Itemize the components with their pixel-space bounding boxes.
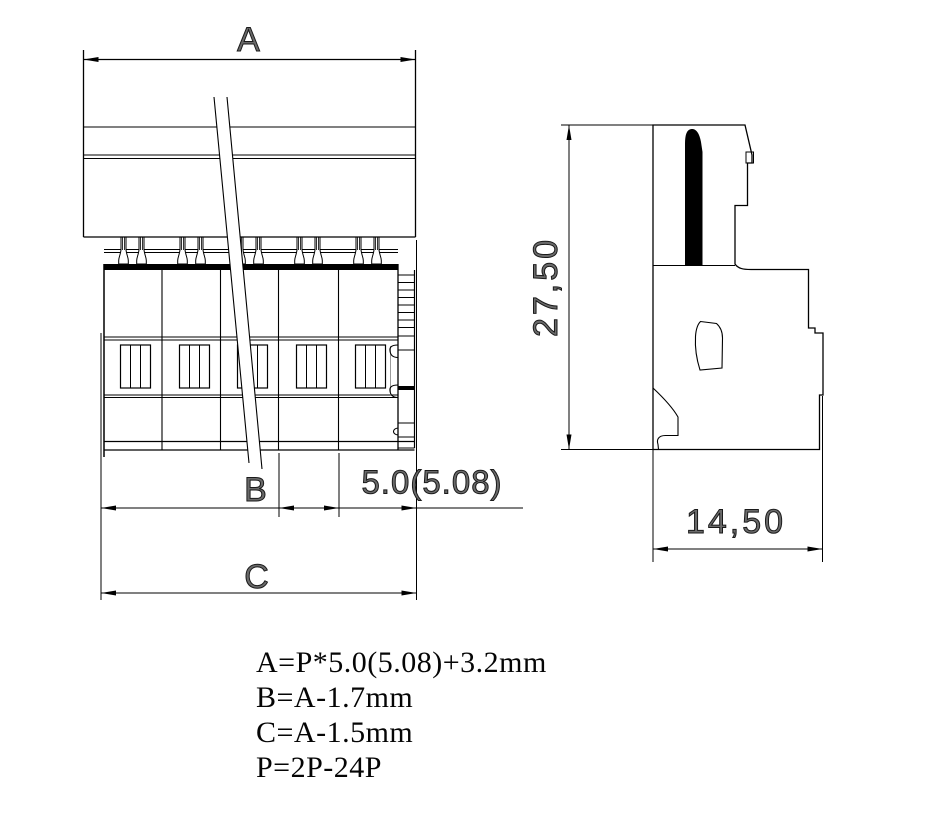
height-label: 27,50 bbox=[529, 237, 563, 337]
side-outline bbox=[653, 125, 823, 450]
clamp-detail bbox=[695, 322, 722, 371]
pitch-label: 5.0(5.08) bbox=[361, 466, 502, 499]
side-view bbox=[561, 125, 823, 562]
formula-line-3: C=A-1.5mm bbox=[256, 716, 413, 749]
latch-bracket-bottom bbox=[390, 385, 398, 398]
formula-line-2: B=A-1.7mm bbox=[256, 681, 413, 714]
front-upper-body bbox=[84, 50, 416, 237]
front-top-band bbox=[104, 264, 398, 270]
break-lines bbox=[214, 97, 262, 469]
depth-label: 14,50 bbox=[686, 505, 786, 539]
dim-a-label: A bbox=[237, 23, 261, 57]
dim-c-label: C bbox=[244, 560, 270, 594]
dim-b-label: B bbox=[244, 473, 268, 507]
dim-height-line bbox=[561, 125, 653, 450]
latch-detail bbox=[394, 428, 399, 435]
drawing-linework bbox=[0, 0, 933, 814]
front-view bbox=[84, 50, 524, 600]
mounting-foot bbox=[653, 388, 678, 450]
front-terminal-pins bbox=[104, 237, 398, 264]
latch-bracket-top bbox=[390, 345, 398, 358]
dim-b-c-pitch bbox=[101, 240, 523, 600]
front-serrated-edge bbox=[390, 264, 415, 450]
formula-line-1: A=P*5.0(5.08)+3.2mm bbox=[256, 646, 547, 679]
technical-drawing: A B 5.0(5.08) C 27,50 14,50 A=P*5.0(5.08… bbox=[0, 0, 933, 814]
formula-line-4: P=2P-24P bbox=[256, 751, 382, 784]
side-contact-pin bbox=[685, 129, 703, 266]
